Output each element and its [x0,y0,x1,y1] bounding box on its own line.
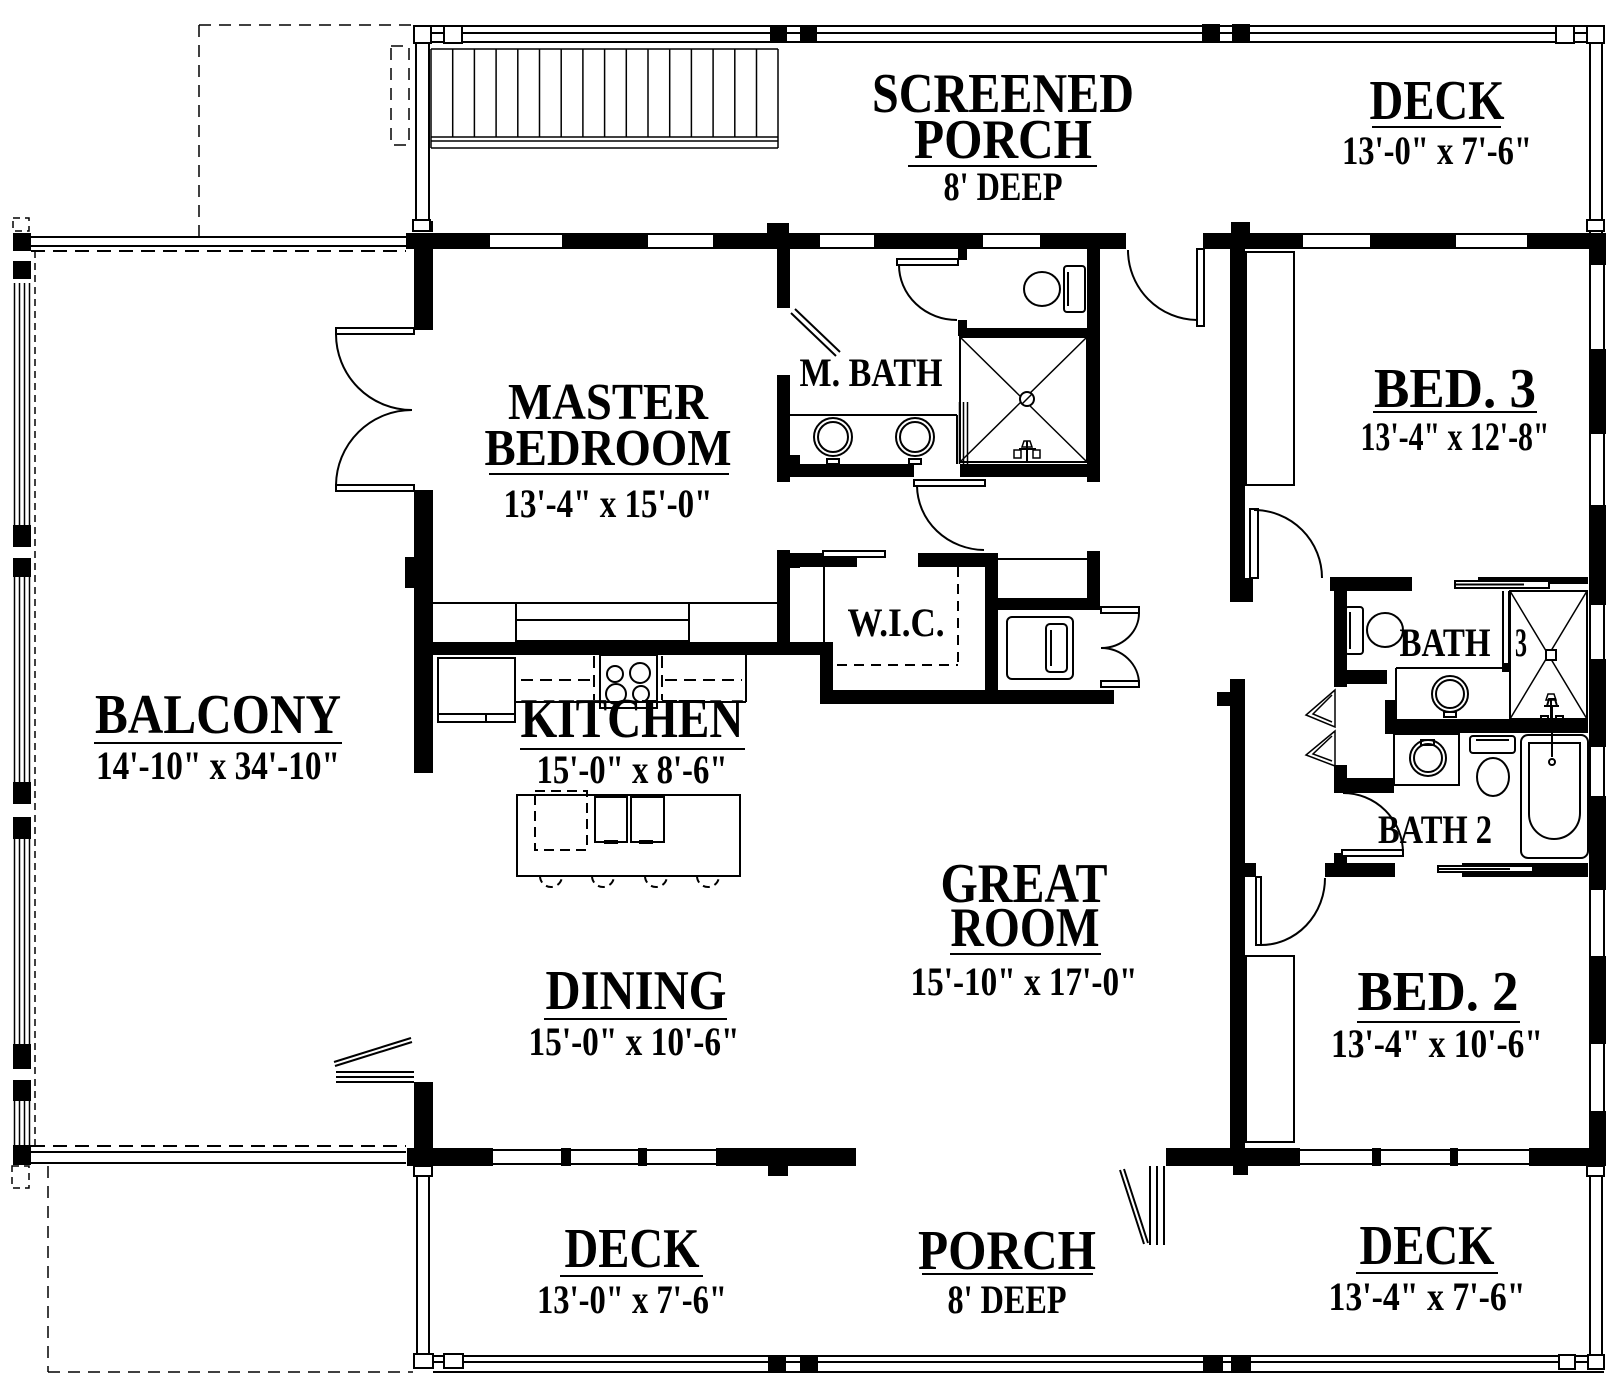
svg-text:13'-4" x 12'-8": 13'-4" x 12'-8" [1361,414,1550,459]
svg-text:BED. 2: BED. 2 [1358,961,1519,1023]
svg-text:DINING: DINING [546,960,727,1022]
svg-text:15'-10" x 17'-0": 15'-10" x 17'-0" [911,959,1138,1004]
svg-text:DECK: DECK [565,1218,700,1280]
svg-text:13'-0" x 7'-6": 13'-0" x 7'-6" [537,1277,727,1322]
svg-text:PORCH: PORCH [914,109,1092,171]
svg-text:DECK: DECK [1360,1215,1495,1277]
svg-text:ROOM: ROOM [951,897,1100,959]
svg-text:BALCONY: BALCONY [95,684,341,746]
svg-text:KITCHEN: KITCHEN [521,688,744,750]
svg-text:13'-0" x 7'-6": 13'-0" x 7'-6" [1342,128,1532,173]
svg-text:DECK: DECK [1370,70,1505,132]
svg-text:8' DEEP: 8' DEEP [948,1277,1067,1322]
svg-text:13'-4" x 10'-6": 13'-4" x 10'-6" [1331,1021,1543,1066]
svg-text:14'-10" x 34'-10": 14'-10" x 34'-10" [96,743,340,788]
svg-text:PORCH: PORCH [918,1220,1096,1282]
svg-text:M. BATH: M. BATH [800,350,943,395]
svg-text:8' DEEP: 8' DEEP [944,164,1063,209]
svg-text:3: 3 [1515,620,1527,665]
svg-text:W.I.C.: W.I.C. [848,600,945,645]
svg-text:BATH: BATH [1400,620,1491,665]
svg-text:BATH 2: BATH 2 [1378,807,1492,852]
svg-text:BEDROOM: BEDROOM [485,420,732,477]
svg-text:13'-4" x 7'-6": 13'-4" x 7'-6" [1329,1274,1526,1319]
svg-text:15'-0" x 8'-6": 15'-0" x 8'-6" [537,747,728,792]
svg-text:13'-4" x 15'-0": 13'-4" x 15'-0" [504,481,713,526]
svg-text:15'-0" x 10'-6": 15'-0" x 10'-6" [529,1019,740,1064]
svg-text:BED. 3: BED. 3 [1374,358,1536,420]
